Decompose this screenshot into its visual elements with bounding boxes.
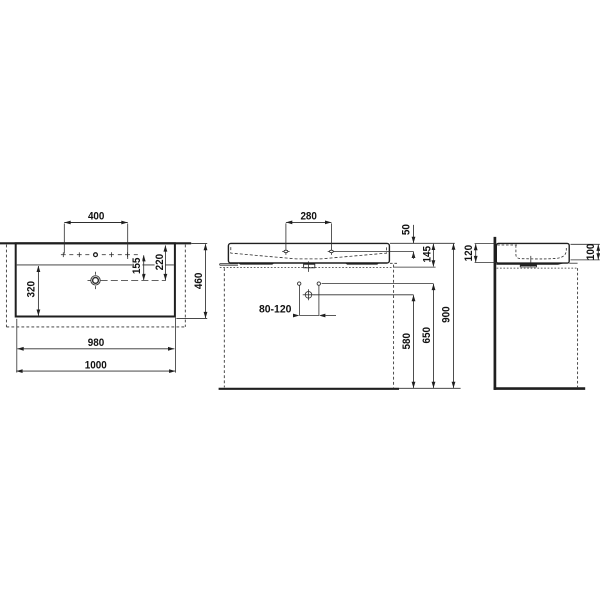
svg-text:1000: 1000 [85, 359, 107, 371]
svg-text:145: 145 [421, 246, 433, 263]
svg-text:900: 900 [441, 306, 453, 323]
svg-text:50: 50 [401, 224, 413, 235]
svg-text:220: 220 [154, 254, 166, 271]
svg-text:280: 280 [300, 210, 317, 222]
svg-text:980: 980 [88, 337, 105, 349]
svg-text:580: 580 [401, 333, 413, 350]
svg-text:155: 155 [131, 258, 143, 275]
svg-text:460: 460 [193, 273, 205, 290]
svg-text:400: 400 [88, 210, 105, 222]
svg-text:120: 120 [463, 245, 475, 262]
svg-text:100: 100 [585, 244, 597, 261]
svg-text:80-120: 80-120 [259, 304, 292, 316]
svg-text:650: 650 [421, 327, 433, 344]
svg-text:320: 320 [26, 281, 38, 298]
